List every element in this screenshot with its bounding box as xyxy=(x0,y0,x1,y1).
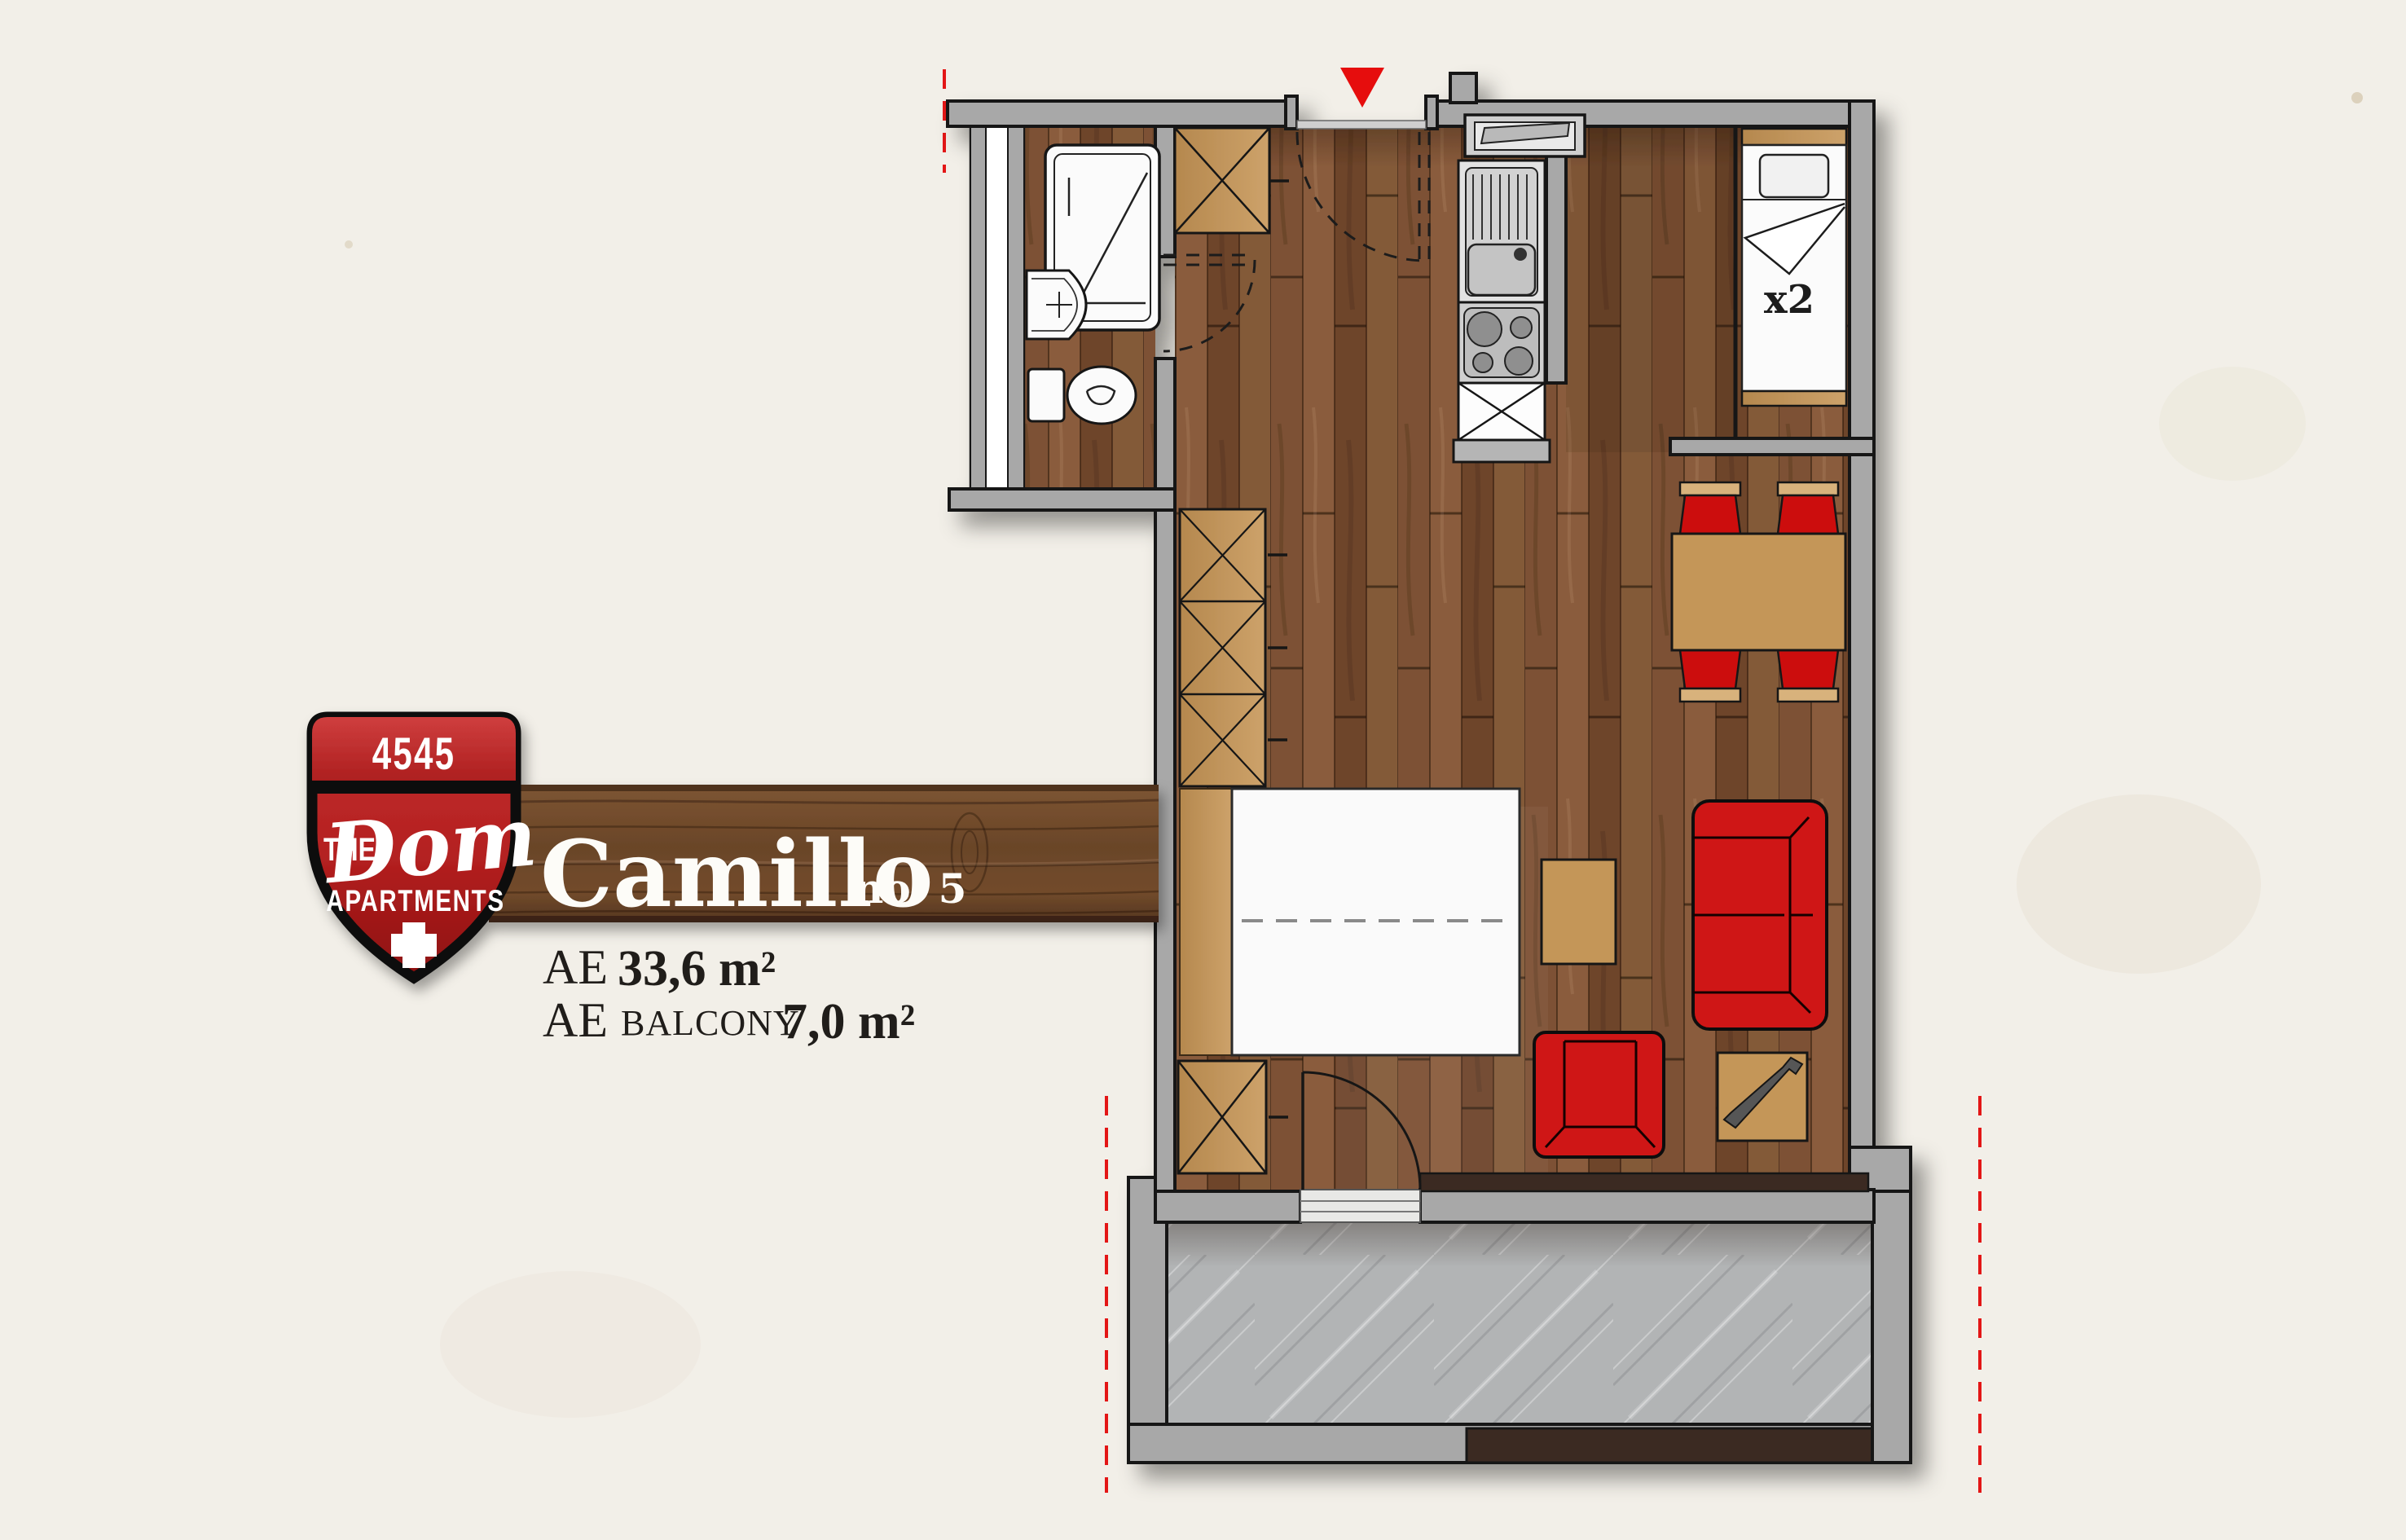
bathroom-window xyxy=(970,126,1024,489)
shield-sub-group: APARTMENTS xyxy=(326,885,504,918)
stove xyxy=(1458,302,1545,383)
balcony-wall-cap xyxy=(1467,1428,1911,1463)
room-number: 4545 xyxy=(372,728,455,779)
entrance-sill xyxy=(1297,121,1426,129)
wall-bathroom-bottom xyxy=(949,489,1175,510)
bed-count-label: x2 xyxy=(1764,277,1814,323)
wall-kitchen-back xyxy=(1546,126,1566,383)
single-bed-nook: x2 xyxy=(1735,126,1846,438)
dining-chair xyxy=(1778,482,1838,534)
paper-speck xyxy=(2351,92,2363,103)
dining-chair xyxy=(1778,650,1838,702)
toilet xyxy=(1028,367,1136,424)
kitchen-cabinet xyxy=(1458,383,1545,440)
wall-top-left xyxy=(948,101,1297,126)
apartment-unit-number: no. 5 xyxy=(854,865,966,913)
balcony-door-threshold xyxy=(1420,1173,1868,1191)
kitchen-base xyxy=(1454,440,1550,462)
wall-bottom-right xyxy=(1420,1190,1874,1222)
dining-chair xyxy=(1680,650,1740,702)
wall-stub-top xyxy=(1450,73,1476,103)
single-bed-footboard xyxy=(1742,391,1846,406)
burner xyxy=(1505,347,1533,375)
sofa xyxy=(1693,801,1827,1029)
burner xyxy=(1467,312,1502,346)
area-label-1: AE xyxy=(543,940,608,994)
balcony-shadow xyxy=(1167,1222,1874,1267)
area-value-2: 7,0 m² xyxy=(782,994,915,1049)
kitchen-window xyxy=(1465,115,1585,156)
double-bed-headboard xyxy=(1180,789,1232,1055)
sink xyxy=(1027,271,1086,339)
single-bed-headboard xyxy=(1742,129,1846,145)
area-value-1: 33,6 m² xyxy=(618,941,776,997)
door-jamb-left xyxy=(1286,96,1297,129)
wall-bottom-left xyxy=(1155,1191,1300,1222)
pillow xyxy=(1760,155,1828,197)
sink-drain xyxy=(1514,248,1527,261)
burner xyxy=(1473,353,1493,372)
balcony-wall-right xyxy=(1872,1177,1911,1463)
dining-chair xyxy=(1680,482,1740,534)
name-banner: Camillo no. 5 xyxy=(489,785,1159,928)
floorplan-canvas: x2 xyxy=(0,0,2406,1540)
burner xyxy=(1511,317,1532,338)
paper-stain xyxy=(440,1271,701,1418)
tv-board xyxy=(1718,1053,1807,1141)
armchair xyxy=(1534,1032,1664,1157)
paper-speck xyxy=(345,240,353,249)
paper-stain xyxy=(2017,794,2261,974)
shield-number-group: 4545 xyxy=(372,728,455,779)
brand-subtitle: APARTMENTS xyxy=(326,885,504,918)
paper-stain xyxy=(2159,367,2306,481)
door-jamb-right xyxy=(1426,96,1437,129)
double-bed-mattress xyxy=(1232,789,1520,1055)
wall-stub-dining xyxy=(1670,438,1874,455)
floor-shade-patch xyxy=(1566,126,1735,452)
coffee-table xyxy=(1542,860,1616,964)
wall-left xyxy=(1155,359,1175,1191)
kitchen-sink-unit xyxy=(1458,161,1545,302)
toilet-bowl xyxy=(1067,367,1136,424)
area-label-2: AE xyxy=(543,993,608,1047)
apartment-floorplan-page: x2 xyxy=(0,0,2406,1540)
toilet-tank xyxy=(1028,369,1064,421)
area-label-2-sub: BALCONY xyxy=(621,1003,800,1043)
dining-table xyxy=(1672,534,1845,650)
wall-right xyxy=(1850,101,1874,1147)
double-bed xyxy=(1180,789,1520,1055)
